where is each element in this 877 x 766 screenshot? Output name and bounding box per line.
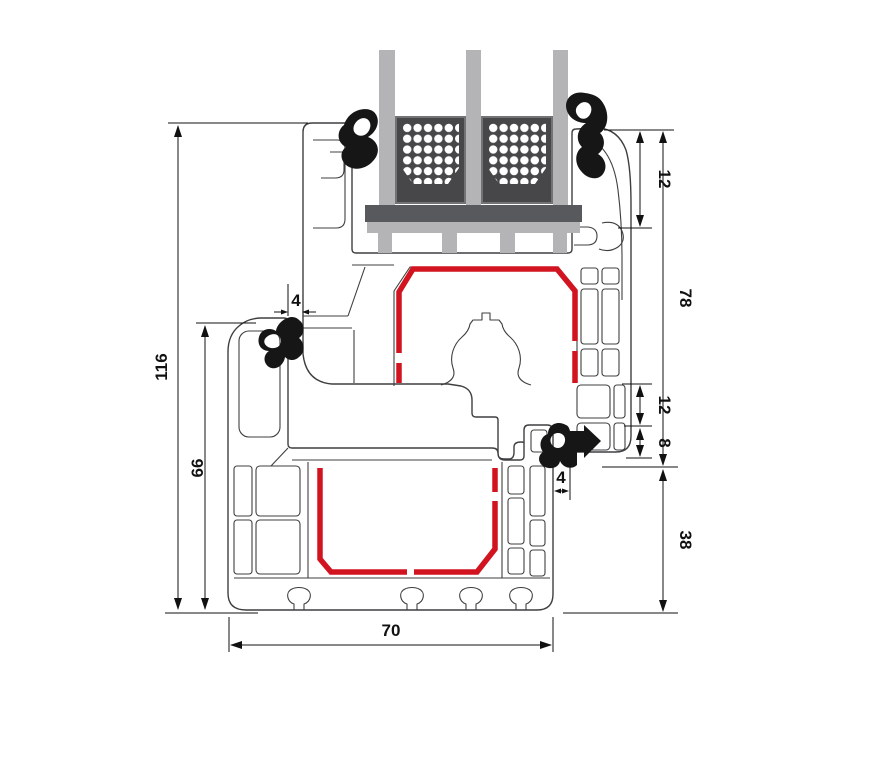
dimension-label: 78 — [676, 289, 695, 308]
arrowhead — [554, 489, 561, 494]
spacer-bar-left — [396, 117, 465, 203]
technical-drawing-page: 116 66 4 12 78 12 — [0, 0, 877, 766]
dimension-gap-bottom-right: 4 — [554, 462, 570, 500]
glazing-block-dark — [365, 205, 582, 222]
desiccant-dots — [488, 122, 546, 184]
dimension-label: 70 — [382, 621, 401, 640]
support-tooth — [442, 233, 457, 253]
dimension-label: 4 — [291, 291, 301, 310]
support-tooth — [500, 233, 515, 253]
dimension-label: 12 — [655, 396, 674, 415]
desiccant-dots — [402, 122, 459, 184]
dimension-frame-bottom: 38 — [563, 470, 695, 613]
glazing-gasket-left — [339, 109, 378, 169]
support-tooth — [553, 233, 567, 253]
dimension-total-width: 70 — [229, 617, 553, 652]
support-tooth — [378, 233, 392, 253]
glazing-block-light — [367, 222, 580, 233]
dimension-label: 8 — [655, 438, 674, 447]
dimension-chamber-small: 8 — [626, 429, 674, 458]
dimension-label: 38 — [676, 531, 695, 550]
dimension-label: 4 — [556, 468, 566, 487]
arrowhead — [562, 489, 569, 494]
spacer-bar-right — [482, 117, 552, 203]
arrowhead — [281, 310, 288, 315]
profile-section-drawing: 116 66 4 12 78 12 — [0, 0, 877, 766]
dimension-label: 66 — [188, 459, 207, 478]
dimension-label: 116 — [152, 353, 171, 380]
dimension-label: 12 — [655, 170, 674, 189]
glazing-unit — [365, 50, 582, 253]
